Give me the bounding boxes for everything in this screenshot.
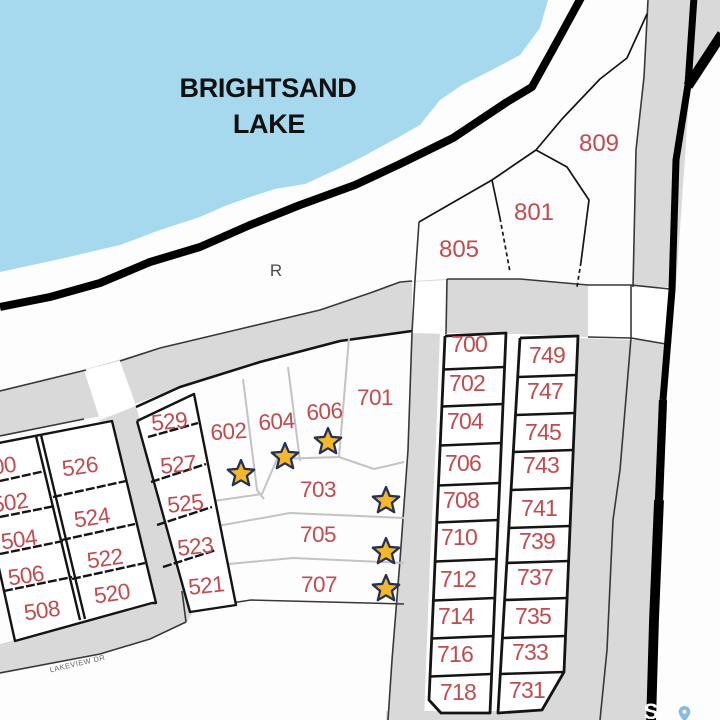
svg-text:749: 749 (529, 342, 565, 368)
svg-text:805: 805 (439, 236, 479, 263)
svg-text:520: 520 (92, 579, 131, 609)
svg-text:521: 521 (187, 571, 225, 600)
svg-text:701: 701 (357, 385, 393, 410)
svg-text:703: 703 (300, 477, 336, 502)
svg-text:506: 506 (6, 561, 45, 591)
svg-text:BRIGHTSAND: BRIGHTSAND (180, 73, 357, 103)
svg-text:R: R (270, 261, 282, 280)
svg-text:710: 710 (441, 524, 477, 550)
svg-text:809: 809 (579, 130, 619, 157)
svg-text:737: 737 (517, 564, 553, 590)
svg-text:801: 801 (514, 199, 554, 226)
svg-text:524: 524 (72, 503, 111, 533)
svg-text:718: 718 (440, 679, 476, 705)
svg-text:602: 602 (210, 418, 248, 445)
svg-text:707: 707 (301, 572, 337, 597)
svg-text:712: 712 (440, 566, 476, 592)
svg-text:604: 604 (258, 408, 296, 435)
svg-text:708: 708 (443, 487, 479, 513)
svg-text:735: 735 (515, 603, 551, 629)
svg-text:714: 714 (438, 603, 475, 629)
svg-text:743: 743 (523, 452, 559, 478)
svg-text:526: 526 (60, 452, 99, 482)
svg-text:508: 508 (22, 596, 61, 626)
svg-text:739: 739 (519, 528, 555, 554)
svg-text:502: 502 (0, 488, 30, 518)
svg-text:523: 523 (176, 532, 214, 561)
svg-text:527: 527 (159, 450, 197, 479)
svg-text:745: 745 (525, 419, 561, 445)
svg-text:LAKE: LAKE (233, 109, 305, 139)
svg-text:522: 522 (85, 544, 124, 574)
svg-text:S: S (644, 699, 659, 720)
svg-text:747: 747 (527, 378, 563, 404)
svg-text:741: 741 (521, 495, 557, 521)
svg-text:706: 706 (445, 450, 481, 476)
svg-text:716: 716 (437, 641, 473, 667)
svg-text:606: 606 (306, 398, 344, 425)
svg-text:731: 731 (509, 677, 545, 703)
svg-text:733: 733 (512, 639, 548, 665)
svg-text:525: 525 (166, 489, 204, 518)
svg-text:704: 704 (447, 408, 484, 434)
svg-text:702: 702 (449, 370, 485, 396)
svg-text:700: 700 (451, 331, 487, 357)
svg-text:504: 504 (0, 525, 39, 555)
svg-text:705: 705 (300, 522, 336, 547)
svg-text:529: 529 (150, 407, 188, 436)
